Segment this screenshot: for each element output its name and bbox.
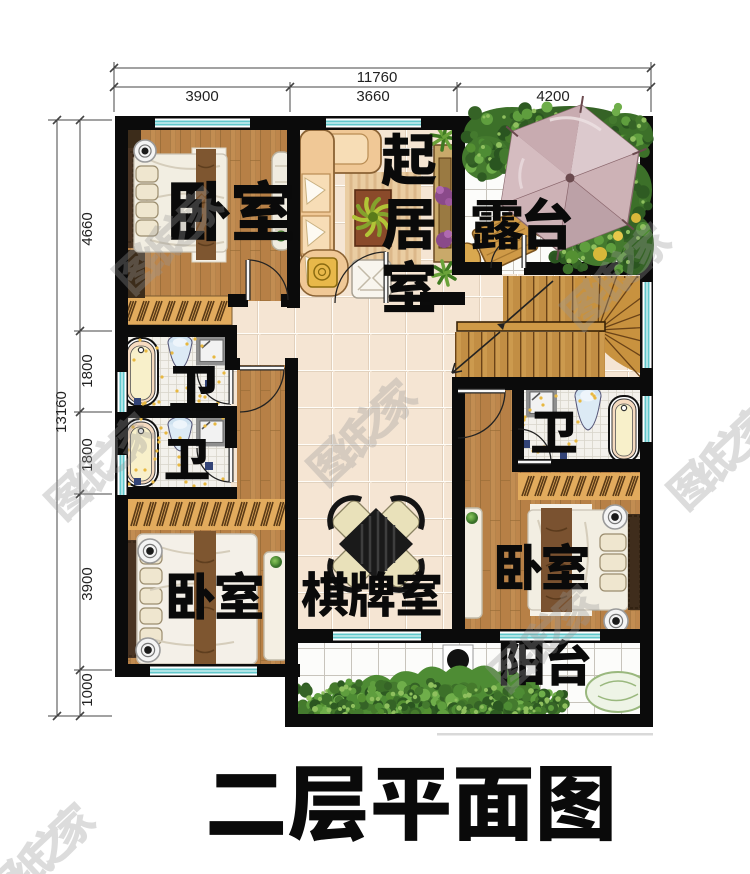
svg-text:1000: 1000: [79, 673, 96, 706]
svg-text:11760: 11760: [357, 69, 398, 86]
svg-text:3900: 3900: [79, 567, 96, 600]
svg-text:3900: 3900: [185, 88, 218, 105]
svg-text:13160: 13160: [53, 391, 70, 433]
svg-text:4660: 4660: [79, 212, 96, 245]
svg-text:4200: 4200: [536, 88, 569, 105]
svg-text:3660: 3660: [356, 88, 389, 105]
svg-text:1800: 1800: [79, 354, 96, 387]
